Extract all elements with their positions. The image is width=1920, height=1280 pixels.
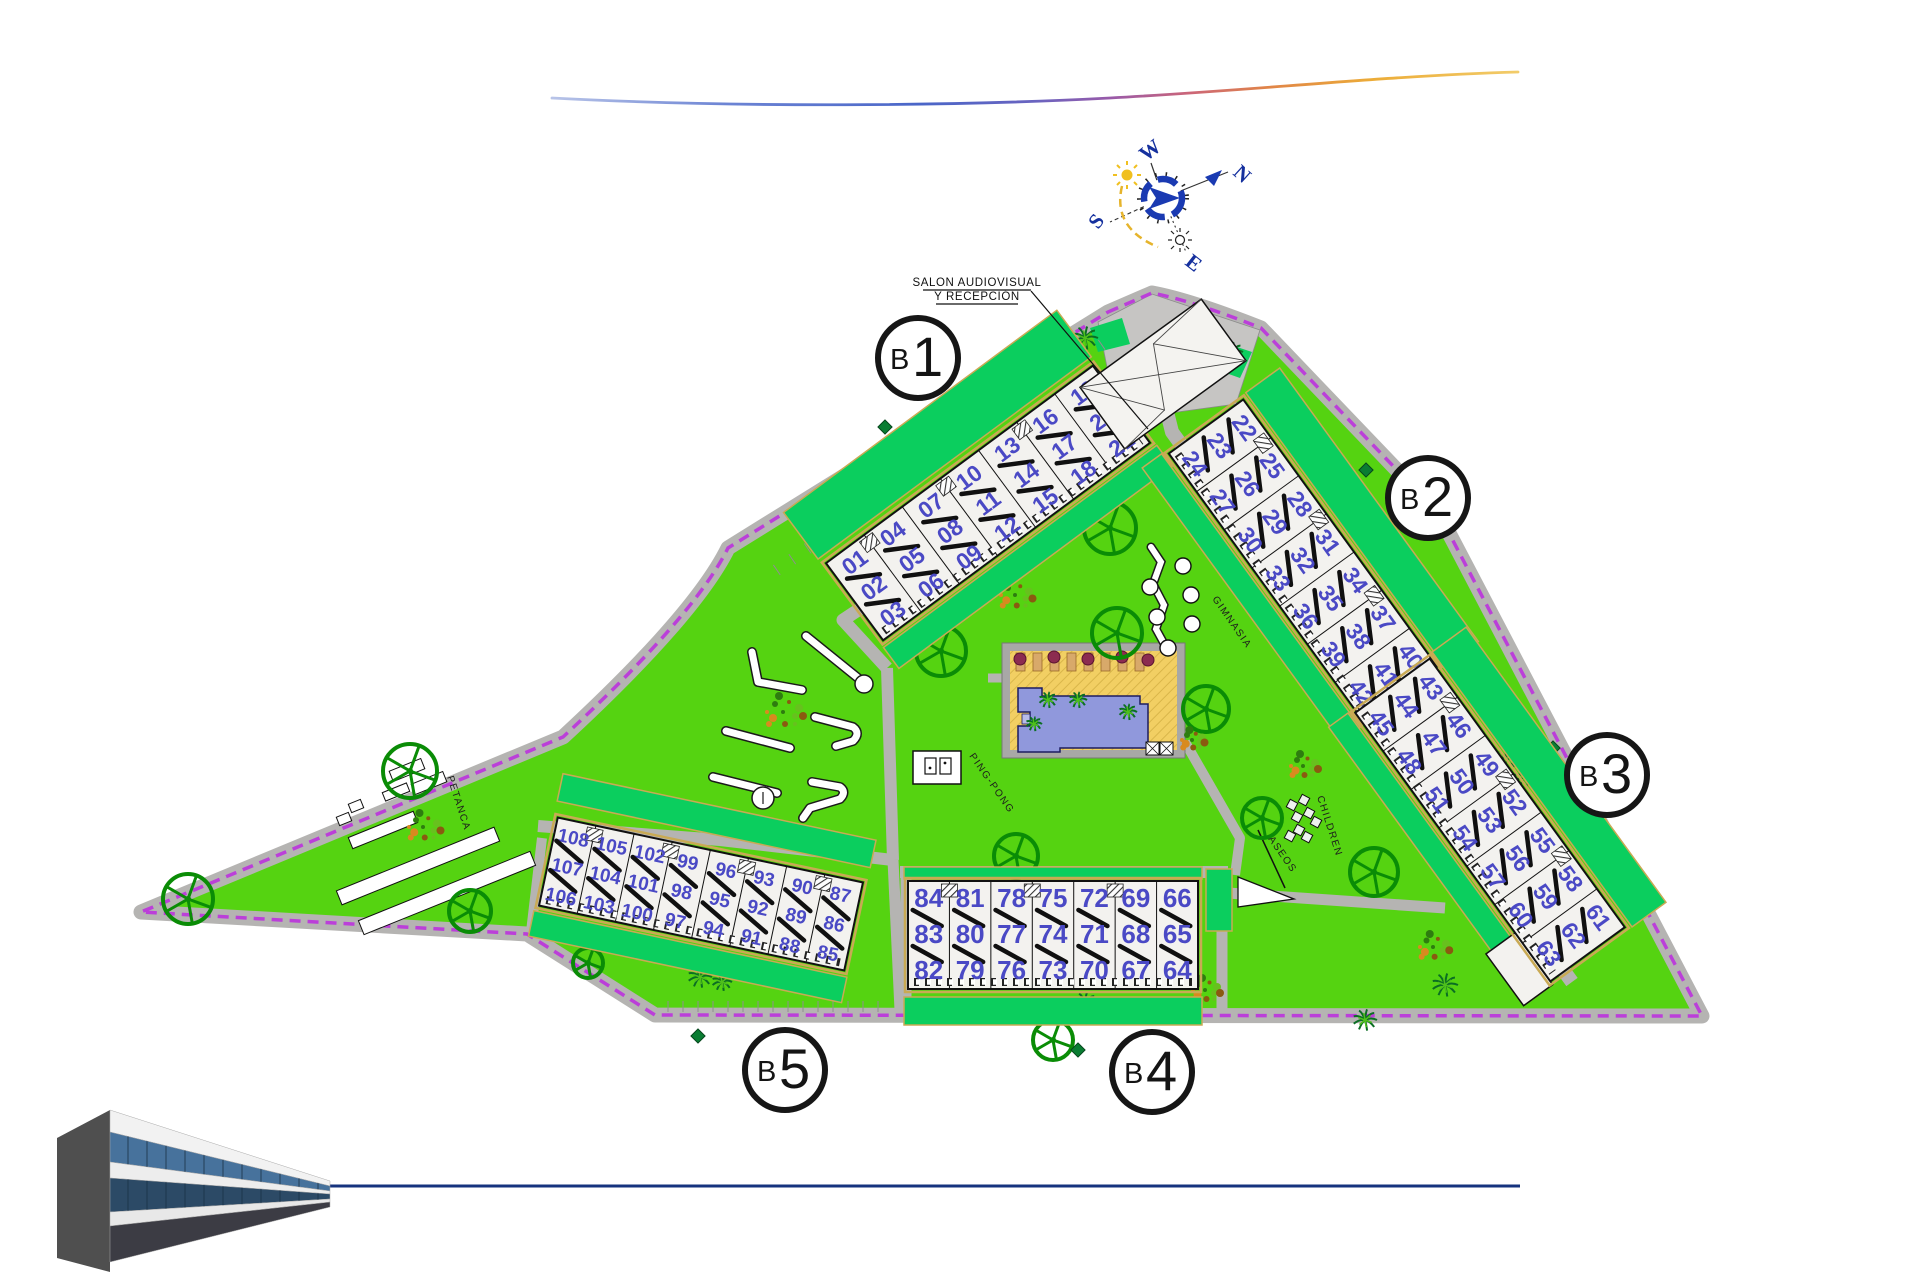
unit-number: 81 bbox=[956, 883, 985, 913]
unit-number: 78 bbox=[997, 883, 1026, 913]
decorative-swoosh bbox=[552, 72, 1518, 105]
circle-number: 2 bbox=[1422, 465, 1451, 528]
unit-number: 84 bbox=[914, 883, 943, 913]
circle-prefix: B bbox=[1579, 761, 1598, 793]
gym-station bbox=[1184, 616, 1200, 632]
unit-number: 70 bbox=[1080, 955, 1109, 985]
unit-number: 67 bbox=[1121, 955, 1150, 985]
compass-rose-icon: N W S E bbox=[1083, 134, 1256, 276]
block-circle-b4: B 4 bbox=[1112, 1032, 1192, 1112]
internal-road bbox=[887, 668, 893, 860]
stairwell-hatch bbox=[737, 859, 755, 875]
parasol-icon bbox=[1014, 653, 1026, 665]
petanca-strip bbox=[348, 799, 363, 812]
unit-number: 88 bbox=[777, 934, 802, 959]
circle-prefix: B bbox=[1400, 484, 1419, 516]
circle-prefix: B bbox=[890, 344, 909, 376]
course-pad bbox=[855, 675, 873, 693]
site-plan-canvas: 0102030405060708091011121314151617181920… bbox=[0, 0, 1920, 1280]
unit-number: 71 bbox=[1080, 919, 1109, 949]
circle-number: 4 bbox=[1146, 1039, 1176, 1102]
unit-number: 66 bbox=[1163, 883, 1192, 913]
entrance-marker-icon bbox=[878, 420, 892, 434]
site-plan-page: 0102030405060708091011121314151617181920… bbox=[0, 0, 1920, 1280]
sun-disc bbox=[1122, 170, 1133, 181]
unit-number: 76 bbox=[997, 955, 1026, 985]
table-icon bbox=[940, 758, 951, 774]
unit-number: 82 bbox=[914, 955, 943, 985]
gym-station bbox=[1183, 587, 1199, 603]
sun-lounger bbox=[1033, 653, 1042, 671]
gym-station bbox=[1160, 640, 1176, 656]
unit-number: 83 bbox=[914, 919, 943, 949]
compass-label-w: W bbox=[1134, 134, 1165, 166]
garden-band bbox=[904, 997, 1202, 1025]
block-b4-building: 8483828180797877767574737271706968676665… bbox=[904, 867, 1232, 1025]
compass-label-s: S bbox=[1083, 209, 1109, 233]
entrance-marker-icon bbox=[691, 1029, 705, 1043]
circle-prefix: B bbox=[757, 1056, 776, 1088]
gym-station bbox=[1149, 609, 1165, 625]
unit-number: 68 bbox=[1121, 919, 1150, 949]
unit-number: 74 bbox=[1039, 919, 1068, 949]
block-circle-b3: B 3 bbox=[1567, 735, 1647, 815]
compass-label-e: E bbox=[1181, 249, 1207, 277]
court-slab bbox=[913, 751, 961, 784]
stairwell-hatch bbox=[814, 876, 832, 892]
unit-number: 65 bbox=[1163, 919, 1192, 949]
parasol-icon bbox=[1048, 651, 1060, 663]
unit-number: 69 bbox=[1121, 883, 1150, 913]
unit-number: 72 bbox=[1080, 883, 1109, 913]
internal-road bbox=[893, 860, 900, 1010]
compass-label-n: N bbox=[1229, 160, 1256, 188]
ball-dot bbox=[929, 767, 932, 770]
garden-band bbox=[1206, 869, 1232, 931]
circle-number: 1 bbox=[912, 325, 941, 388]
unit-number: 80 bbox=[956, 919, 985, 949]
reception-label-line2: Y RECEPCIÓN bbox=[934, 290, 1020, 303]
star-icon bbox=[1168, 228, 1192, 252]
unit-number: 97 bbox=[663, 909, 688, 934]
unit-number: 73 bbox=[1039, 955, 1068, 985]
parasol-icon bbox=[1142, 654, 1154, 666]
circle-prefix: B bbox=[1124, 1058, 1143, 1090]
parasol-icon bbox=[1082, 653, 1094, 665]
pool-steps bbox=[1022, 714, 1030, 724]
block-circle-b2: B 2 bbox=[1388, 458, 1468, 538]
circle-number: 5 bbox=[779, 1037, 808, 1100]
tree-icon bbox=[1033, 1020, 1073, 1060]
circle-number: 3 bbox=[1601, 742, 1630, 805]
pool-area bbox=[1002, 643, 1185, 758]
table-icon bbox=[925, 758, 936, 774]
block-circle-b1: B 1 bbox=[878, 318, 958, 398]
sun-icon bbox=[1113, 161, 1141, 189]
unit-number: 64 bbox=[1163, 955, 1192, 985]
sun-lounger bbox=[1067, 653, 1076, 671]
logo-3d-building bbox=[57, 1110, 330, 1272]
ping-pong-court bbox=[913, 751, 961, 784]
ball-dot bbox=[944, 762, 947, 765]
block-circle-b5: B 5 bbox=[745, 1030, 825, 1110]
gym-station bbox=[1175, 558, 1191, 574]
unit-number: 79 bbox=[956, 955, 985, 985]
unit-number: 77 bbox=[997, 919, 1026, 949]
logo-side-face bbox=[57, 1110, 110, 1272]
unit-number: 75 bbox=[1039, 883, 1068, 913]
reception-label-line1: SALON AUDIOVISUAL bbox=[912, 277, 1041, 289]
north-arrowhead bbox=[1205, 170, 1222, 186]
gym-station bbox=[1142, 579, 1158, 595]
